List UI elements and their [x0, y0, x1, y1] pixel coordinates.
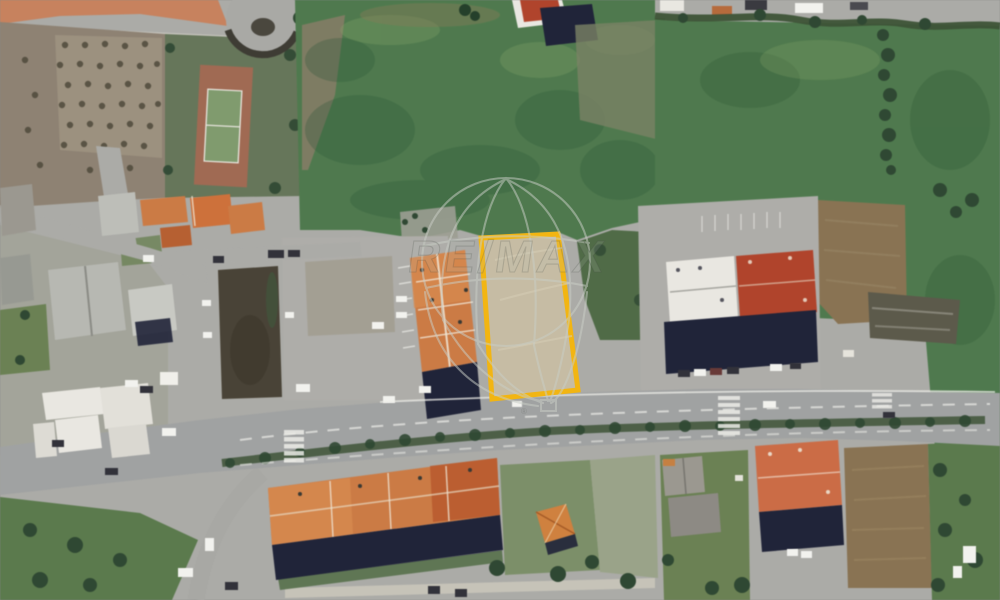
satellite-photo: RE/MAX ®: [0, 0, 1000, 600]
registered-mark: ®: [521, 407, 527, 416]
gray-house-2: [0, 254, 34, 305]
crosswalk-far-east: [872, 393, 892, 409]
olive-grove: [0, 22, 165, 208]
white-orange-building: [664, 250, 818, 374]
sports-yard: [163, 34, 302, 198]
watermark-text: RE/MAX: [405, 231, 611, 282]
box-truck: [160, 372, 178, 385]
pale-lawn: [590, 455, 658, 578]
white-house: [98, 192, 139, 236]
ruin-structure: [868, 292, 960, 344]
gray-house-1: [0, 184, 36, 236]
white-van: [795, 3, 823, 13]
salmon-building-south: [755, 440, 844, 552]
dark-plot: [218, 266, 282, 399]
tennis-court: [194, 65, 253, 188]
